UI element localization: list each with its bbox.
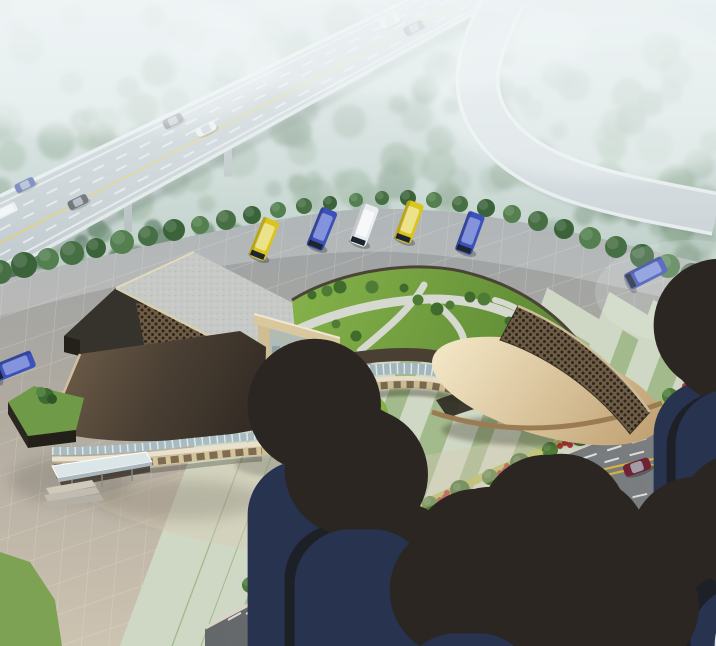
pedestrian — [401, 512, 534, 646]
edge-tree — [60, 241, 84, 265]
roof-shrub — [332, 320, 341, 329]
circle — [165, 220, 177, 232]
circle — [39, 249, 51, 261]
circle — [218, 211, 229, 222]
edge-tree — [270, 202, 286, 218]
edge-tree — [554, 219, 574, 239]
circle — [192, 217, 202, 227]
roof-shrub — [413, 295, 424, 306]
circle — [453, 197, 462, 206]
scene-canvas — [0, 0, 716, 646]
edge-tree — [503, 205, 521, 223]
circle — [271, 203, 280, 212]
edge-tree — [216, 210, 236, 230]
circle — [556, 220, 567, 231]
edge-tree — [86, 238, 106, 258]
edge-tree — [452, 196, 468, 212]
edge-tree — [426, 192, 442, 208]
circle — [112, 231, 125, 244]
roof-shrub — [322, 286, 333, 297]
circle — [607, 237, 619, 249]
circle — [88, 239, 99, 250]
roof-shrub — [334, 281, 347, 294]
roof-shrub — [366, 281, 379, 294]
circle — [478, 200, 488, 210]
circle — [427, 193, 436, 202]
roof-shrub — [351, 331, 362, 342]
architectural-rendering — [0, 0, 716, 646]
roof-shrub — [478, 293, 491, 306]
edge-tree — [37, 248, 59, 270]
circle — [376, 192, 384, 200]
edge-tree — [528, 211, 548, 231]
edge-tree — [296, 198, 312, 214]
edge-tree — [243, 206, 261, 224]
edge-tree — [163, 219, 185, 241]
roof-shrub — [431, 303, 444, 316]
roof-shrub — [465, 292, 476, 303]
roof-shrub — [308, 291, 317, 300]
circle — [324, 197, 332, 205]
circle — [663, 389, 671, 397]
circle — [401, 191, 410, 200]
edge-tree — [138, 226, 158, 246]
edge-tree — [110, 230, 134, 254]
edge-tree — [349, 193, 363, 207]
edge-tree — [191, 216, 209, 234]
circle — [62, 242, 75, 255]
circle — [297, 199, 306, 208]
edge-tree — [579, 227, 601, 249]
edge-tree — [605, 236, 627, 258]
circle — [13, 253, 27, 267]
edge-tree — [11, 252, 37, 278]
edge-tree — [375, 191, 389, 205]
circle — [350, 194, 358, 202]
circle — [581, 228, 593, 240]
roof-shrub — [400, 284, 409, 293]
circle — [504, 206, 514, 216]
circle — [244, 207, 254, 217]
circle — [140, 227, 151, 238]
circle — [530, 212, 541, 223]
roof-shrub — [446, 301, 455, 310]
